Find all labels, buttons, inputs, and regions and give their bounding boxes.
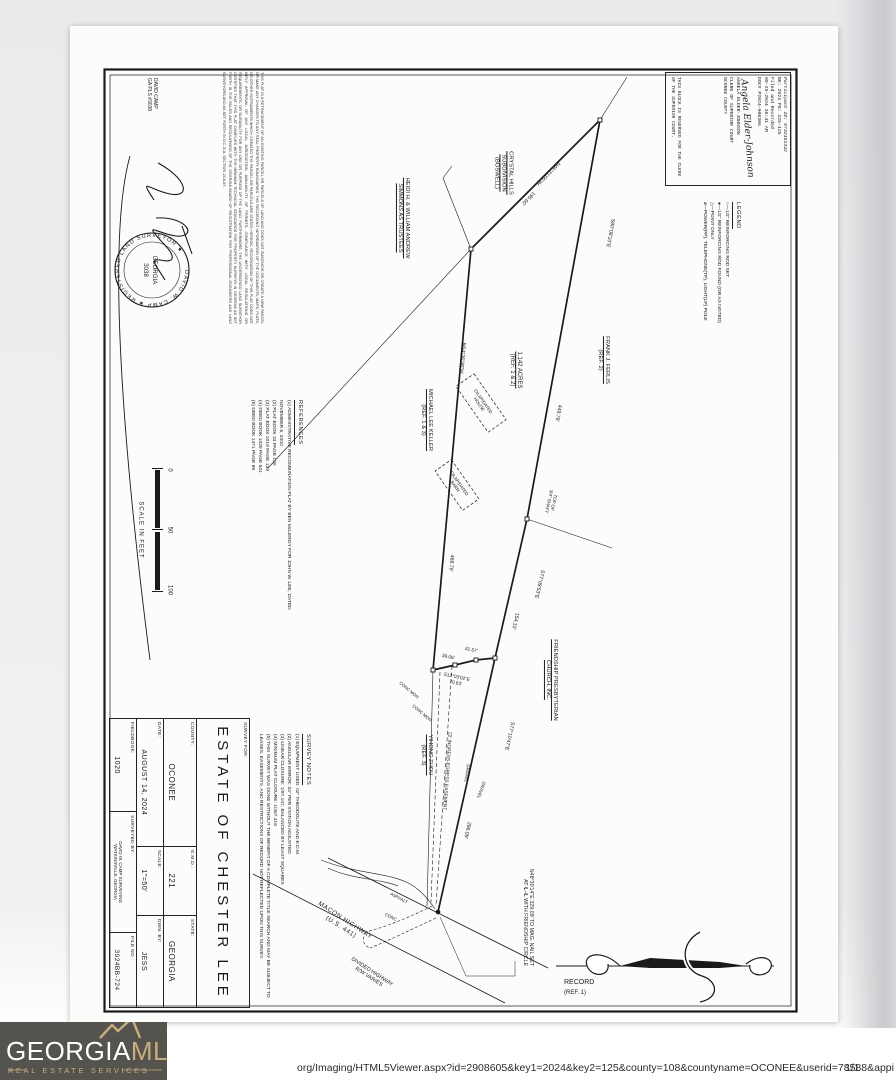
doc-number: DOC# P2024-000306 [755, 77, 761, 181]
adjoiner-crystal-hills: CRYSTAL HILLS SUBDIVISION (BOSWELL) [493, 151, 514, 195]
gravel-drive-lines [363, 906, 436, 948]
file-no-value: 3924BB-724 [113, 949, 120, 990]
survey-note-item: (4) MINIMUM PLAT CLOSURE: 1/467,316 [271, 734, 278, 1006]
parcel-boundary-lines [433, 120, 600, 912]
scale-tick-100: 100 [165, 585, 172, 595]
date-value: AUGUST 14, 2024 [140, 749, 147, 815]
survey-notes-block: SURVEY NOTES (1) EQUIPMENT USED: 02" THE… [257, 734, 312, 1006]
fieldbook-value: 1020 [113, 756, 120, 774]
legend-item-rod-set: ○—1/2" REINFORCING ROD SET [723, 202, 730, 377]
file-no-label: FILE NO.: [129, 936, 134, 960]
survey-note-item: (3) LINEAR CLOSURE: 1/97,107, BALANCED B… [278, 734, 285, 1006]
drawn-by-label: DWN. BY: [156, 919, 161, 943]
north-arrow-block: RECORD (REF. 1) [550, 913, 780, 1013]
plat-portrait-area: DAVID W. CAMP ★ REGISTERED LAND SURVEYOR… [103, 68, 798, 1013]
corner-markers [431, 118, 602, 914]
signature-underline-flourish [119, 156, 150, 660]
legend-item-pole: ⌀—POWER(PP), TELEPHONE(TP), LIGHT(LP) PO… [701, 202, 708, 377]
road-island-curves [321, 860, 435, 909]
reference-item: (4) DEED BOOK 1029 PAGE 501 [256, 400, 263, 628]
fieldbook-label: FIELDBOOK: [129, 722, 134, 754]
county-value: OCONEE [167, 764, 176, 802]
record-ref-label: (REF. 1) [564, 990, 586, 996]
drawn-by-value: JESS [140, 952, 147, 972]
clerk-title: CLERK OF SUPERIOR COURT [727, 77, 733, 181]
mag-nail-leader-line [440, 917, 515, 976]
references-block: REFERENCES (1) ADMINISTRATIVE RECOMBINAT… [249, 400, 304, 628]
reference-item: (3) PLAT BOOK 2019 PAGE 139 [263, 400, 270, 628]
reference-item: (2) PLAT BOOK 33 PAGE 100 [270, 400, 277, 628]
mag-nail-note: N48°30'14"E 329.09' TO MAG. NAIL SET AT … [521, 826, 534, 966]
participant-id: Participant ID: 8732451342 [781, 77, 787, 181]
seal-number-text: 3038 [142, 263, 149, 277]
survey-note-item: (5) THIS SURVEY WAS DONE WITHOUT THE BEN… [257, 734, 271, 1006]
survey-note-item: (1) EQUIPMENT USED: 02" THEODOLITE AND E… [293, 734, 300, 1006]
references-title: REFERENCES [294, 400, 304, 445]
clerk-recording-block: Participant ID: 8732451342 BK: 2024 PG: … [665, 72, 791, 186]
surveyed-by-firm: DAVID W. CAMP SURVEYING [118, 841, 123, 903]
date-label: DATE: [156, 722, 161, 737]
gmd-value: 221 [167, 873, 176, 888]
state-label: STATE: [189, 919, 194, 937]
adjoiner-church: FRIENDSHIP PRESBYTERIAN CHURCH, INC. [544, 639, 558, 720]
county-label: COUNTY: [189, 722, 194, 745]
client-name: ESTATE OF CHESTER LEE [197, 719, 249, 1007]
logo-georgia-text: GEORGIA [6, 1036, 131, 1066]
arrow-pennant [620, 958, 746, 968]
survey-note-item: (2) ANGULAR ERROR: 04" PER STATION ADJUS… [285, 734, 292, 1006]
adjoiner-zhou: YIHONG ZHOU (REF. 3) [419, 735, 433, 776]
reserved-note: THIS BLOCK IS RESERVED FOR THE CLERK OF … [669, 77, 681, 181]
surveyor-seal: DAVID W. CAMP ★ REGISTERED LAND SURVEYOR… [115, 233, 189, 307]
logo-wordmark: GEORGIAMLS [6, 1036, 167, 1067]
north-arrow-inner: RECORD (REF. 1) [550, 918, 780, 1008]
logo-tagline: REAL ESTATE SERVICES [8, 1066, 149, 1075]
georgiamls-logo: GEORGIAMLS REAL ESTATE SERVICES [0, 1022, 167, 1080]
record-label: RECORD [564, 979, 594, 986]
scale-label: SCALE: [156, 850, 161, 869]
plat-landscape-content: DAVID W. CAMP ★ REGISTERED LAND SURVEYOR… [103, 68, 798, 1013]
reference-item: (1) ADMINISTRATIVE RECOMBINATION PLAT BY… [277, 400, 291, 628]
north-arrow-ornament: RECORD (REF. 1) [550, 918, 780, 1008]
survey-for-label: SURVEY FOR: [242, 722, 247, 758]
legend: LEGEND ○—1/2" REINFORCING ROD SET ●—1/2"… [701, 202, 742, 377]
title-block: SURVEY FOR: ESTATE OF CHESTER LEE COUNTY… [109, 718, 250, 1008]
parcel-area-label: 1.142 ACRES (REF. 1 & 2) [508, 351, 522, 388]
adjoiner-keller: MICHAEL LEE KELLER (REF. 1 & 3) [419, 389, 433, 451]
book-page: BK: 2024 PG: 125-125 [774, 77, 780, 181]
legend-title: LEGEND [732, 202, 742, 229]
state-value: GEORGIA [167, 941, 176, 982]
scale-bar [152, 468, 163, 592]
legend-item-rod-found: ●—1/2" REINFORCING ROD FOUND (OR AS NOTE… [715, 202, 722, 377]
surveyed-by-label: SURVEYED BY: [129, 815, 134, 854]
clerk-county: OCONEE COUNTY [720, 77, 726, 181]
filed-datetime: 08-29-2024 10:41 AM [761, 77, 767, 181]
surveyor-license-note: DAVID CAMP GA PLS #3038 [146, 78, 158, 111]
survey-notes-title: SURVEY NOTES [302, 734, 312, 785]
adjoiner-ferlis: FRANK J. FERLIS (REF. 2) [596, 336, 610, 384]
surveyed-by-city: WATKINSVILLE, GEORGIA [113, 844, 118, 900]
filed-label: Filed and Recorded [768, 77, 774, 181]
print-footer-page-indicator: 1/1 [845, 1062, 860, 1074]
scale-tick-0: 0 [165, 468, 172, 471]
viewer-background-shadow [836, 0, 896, 1028]
scanned-plat-page: DAVID W. CAMP ★ REGISTERED LAND SURVEYOR… [70, 26, 838, 1022]
scale-tick-50: 50 [165, 527, 172, 534]
scale-caption: SCALE IN FEET [136, 501, 143, 558]
adjoiner-simmons: HEIDI H. & WILLIAM ANDREW SIMMONS AS TRU… [396, 178, 410, 259]
gmd-label: G.M.D.: [189, 850, 194, 869]
surveyor-certification-text: THIS PLAT IS A RETRACEMENT OF AN EXISTIN… [221, 72, 264, 324]
scale-value: 1"=50' [140, 869, 147, 892]
reference-item: (5) DEED BOOK 1471 PAGE 89 [249, 400, 256, 628]
legend-item-point-only: △—POINT ONLY [708, 202, 715, 377]
print-footer-url: org/Imaging/HTML5Viewer.aspx?id=2908605&… [297, 1062, 894, 1074]
logo-mls-text: MLS [131, 1036, 167, 1066]
